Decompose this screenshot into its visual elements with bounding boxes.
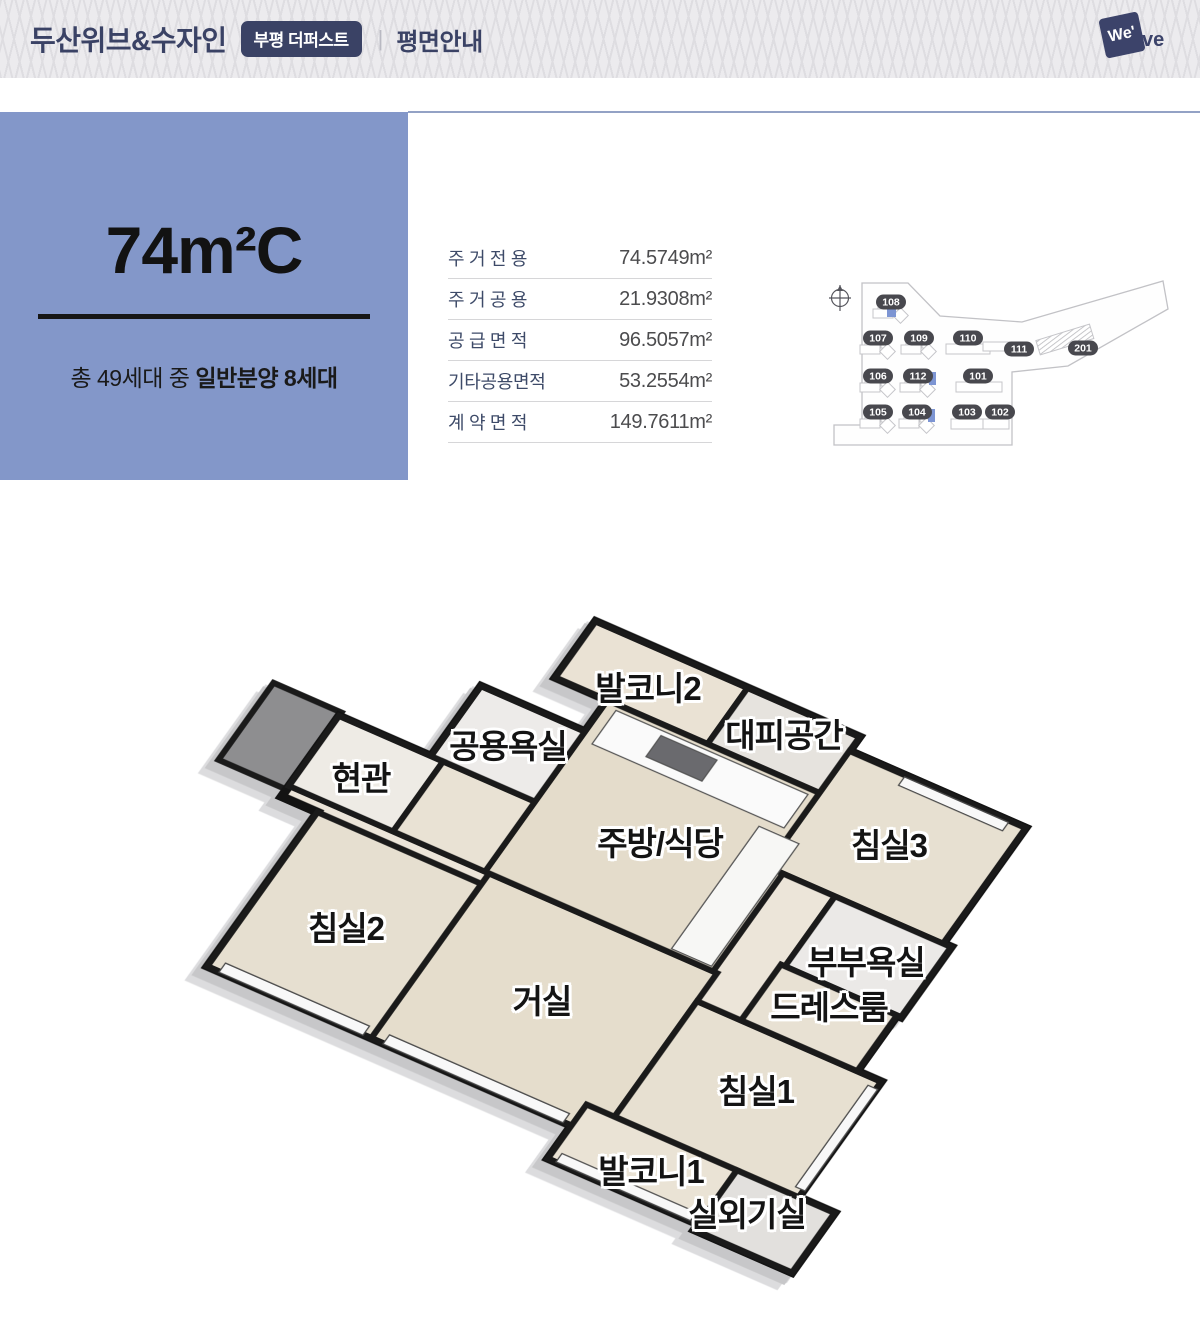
room-label-bedroom2: 침실2: [308, 902, 384, 950]
brand-title: 두산위브&수자인: [30, 19, 227, 59]
unit-type-panel: 74m²C 총 49세대 중 일반분양 8세대: [0, 112, 408, 480]
site-badge-102: 102: [991, 407, 1009, 419]
area-row-value: 21.9308m²: [619, 288, 712, 311]
area-row-label: 공 급 면 적: [448, 327, 527, 353]
unit-panel-rule: [38, 314, 370, 319]
brand-row: 두산위브&수자인 부평 더퍼스트 | 평면안내: [30, 0, 483, 78]
table-row: 계 약 면 적 149.7611m²: [448, 402, 712, 443]
room-label-refuge: 대피공간: [725, 709, 842, 757]
site-badge-110: 110: [960, 333, 977, 345]
site-badge-107: 107: [869, 333, 887, 345]
area-row-label: 기타공용면적: [448, 368, 546, 394]
weve-logo: We' ve: [1102, 12, 1182, 66]
site-badge-106: 106: [869, 371, 887, 383]
table-row: 공 급 면 적 96.5057m²: [448, 320, 712, 361]
site-badge-105: 105: [869, 407, 887, 419]
room-label-balcony1: 발코니1: [598, 1145, 703, 1193]
area-row-value: 74.5749m²: [619, 247, 712, 270]
site-badge-201: 201: [1074, 343, 1092, 355]
room-label-dressroom: 드레스룸: [770, 981, 887, 1029]
room-label-entrance: 현관: [332, 752, 391, 800]
site-badge-112: 112: [910, 371, 927, 383]
site-badge-101: 101: [969, 371, 987, 383]
site-badge-111: 111: [1011, 344, 1028, 356]
unit-type-name: 74m²C: [106, 212, 303, 288]
room-label-living: 거실: [513, 975, 572, 1023]
unit-supply-note-prefix: 총 49세대 중: [70, 365, 195, 391]
weve-logo-box: We': [1098, 11, 1145, 58]
room-label-master-bath: 부부욕실: [807, 936, 924, 984]
unit-supply-note-bold: 일반분양 8세대: [195, 365, 337, 391]
compass-icon: [829, 285, 851, 311]
site-badge-109: 109: [910, 333, 928, 345]
page-header: 두산위브&수자인 부평 더퍼스트 | 평면안내 We' ve: [0, 0, 1200, 78]
site-badge-103: 103: [958, 407, 976, 419]
table-row: 주 거 전 용 74.5749m²: [448, 238, 712, 279]
unit-supply-note: 총 49세대 중 일반분양 8세대: [70, 359, 337, 393]
area-row-label: 주 거 공 용: [448, 286, 527, 312]
area-row-value: 149.7611m²: [610, 411, 712, 434]
area-row-label: 계 약 면 적: [448, 409, 527, 435]
room-label-balcony2: 발코니2: [595, 662, 700, 710]
site-badge-104: 104: [908, 407, 926, 419]
brand-divider: |: [378, 26, 384, 52]
room-label-ac-room: 실외기실: [688, 1188, 805, 1236]
area-row-value: 96.5057m²: [619, 329, 712, 352]
brand-badge: 부평 더퍼스트: [241, 21, 362, 57]
room-label-common-bath: 공용욕실: [449, 720, 566, 768]
area-row-label: 주 거 전 용: [448, 245, 527, 271]
room-label-kitchen: 주방/식당: [597, 817, 723, 865]
site-map: 108 107 109 110 111 201 106 112 101 105 …: [825, 270, 1170, 460]
weve-logo-tail: ve: [1142, 29, 1164, 52]
site-badge-108: 108: [882, 297, 900, 309]
page-title: 평면안내: [396, 22, 482, 57]
room-label-bedroom1: 침실1: [718, 1065, 794, 1113]
room-label-bedroom3: 침실3: [851, 819, 927, 867]
floor-plan-page: 두산위브&수자인 부평 더퍼스트 | 평면안내 We' ve 74m²C 총 4…: [0, 0, 1200, 1340]
area-row-value: 53.2554m²: [619, 370, 712, 393]
table-row: 주 거 공 용 21.9308m²: [448, 279, 712, 320]
top-divider-line: [408, 111, 1200, 113]
table-row: 기타공용면적 53.2554m²: [448, 361, 712, 402]
area-table: 주 거 전 용 74.5749m² 주 거 공 용 21.9308m² 공 급 …: [448, 238, 712, 443]
